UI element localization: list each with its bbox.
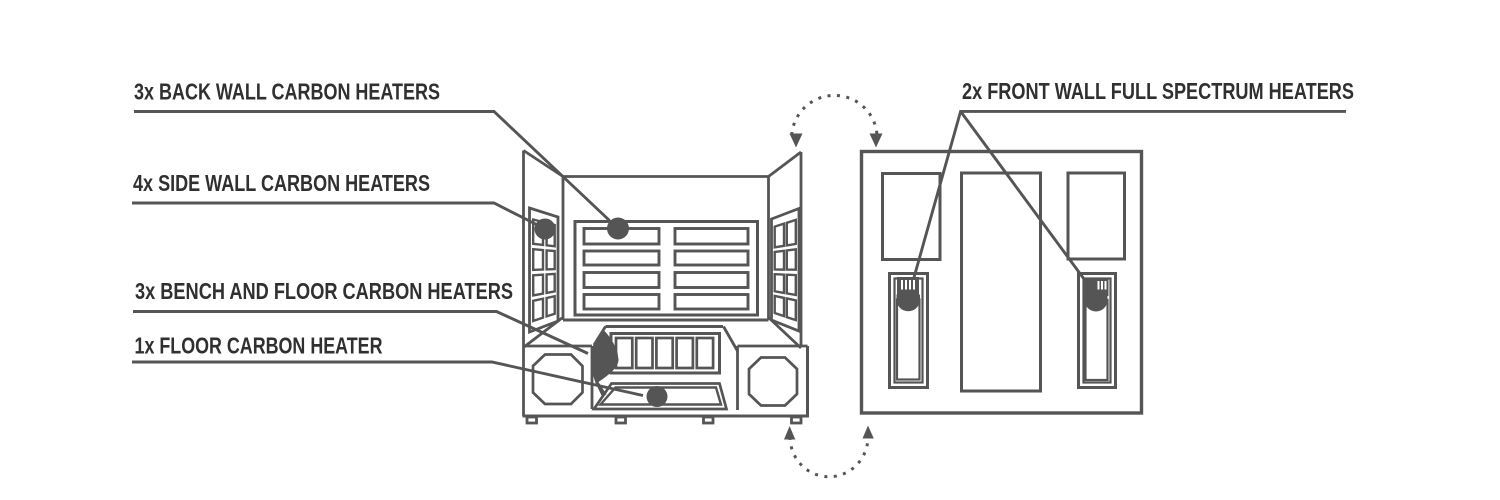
svg-text:3x BACK WALL CARBON HEATERS: 3x BACK WALL CARBON HEATERS	[134, 79, 440, 105]
svg-text:3x BENCH AND FLOOR CARBON HEAT: 3x BENCH AND FLOOR CARBON HEATERS	[135, 278, 513, 304]
svg-text:1x FLOOR CARBON HEATER: 1x FLOOR CARBON HEATER	[135, 333, 383, 359]
svg-text:2x FRONT WALL FULL SPECTRUM HE: 2x FRONT WALL FULL SPECTRUM HEATERS	[962, 78, 1354, 104]
svg-text:4x SIDE WALL CARBON HEATERS: 4x SIDE WALL CARBON HEATERS	[133, 170, 430, 196]
